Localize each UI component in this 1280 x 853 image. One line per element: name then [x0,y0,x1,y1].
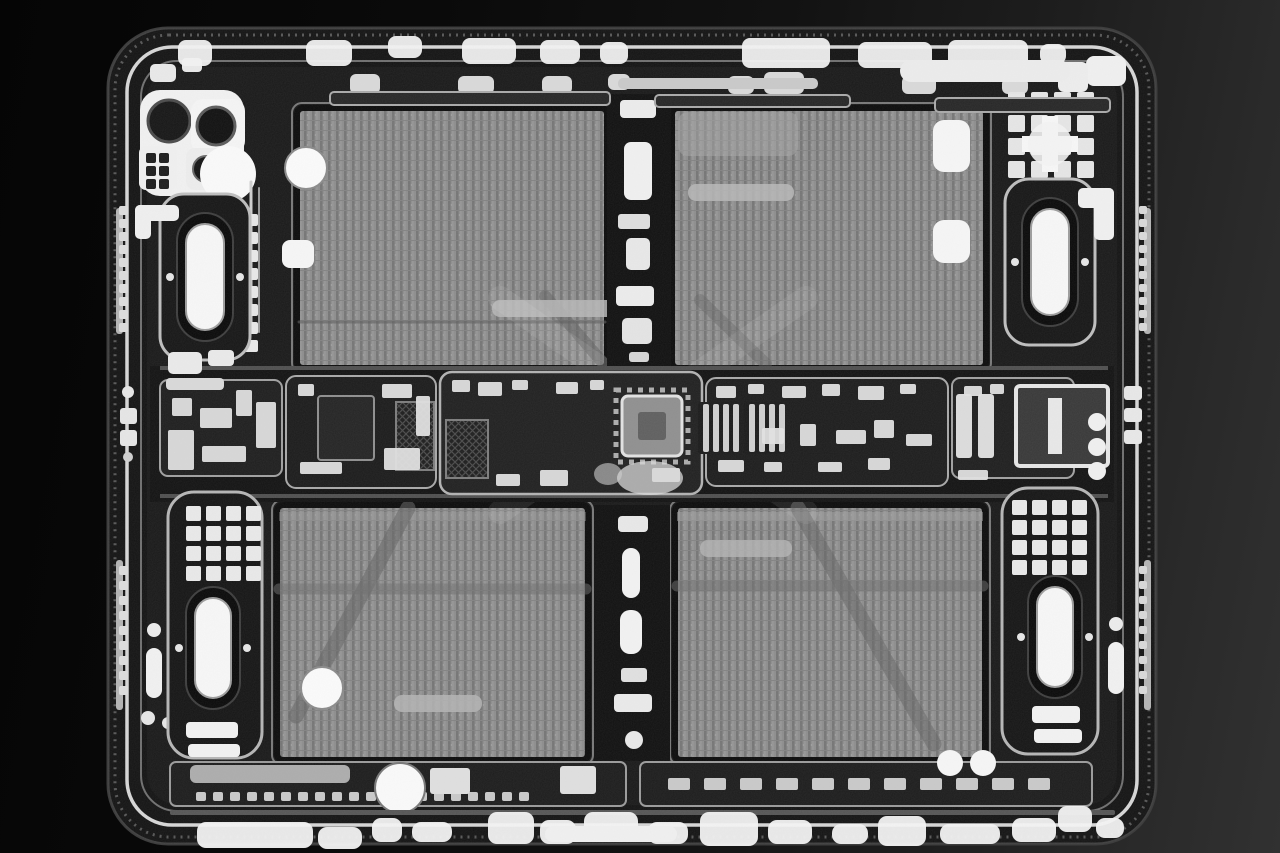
xray-shape-root [108,28,1156,849]
xray-grain [108,28,1156,844]
tablet-xray-image [0,0,1280,853]
xray-photo [0,0,1280,853]
